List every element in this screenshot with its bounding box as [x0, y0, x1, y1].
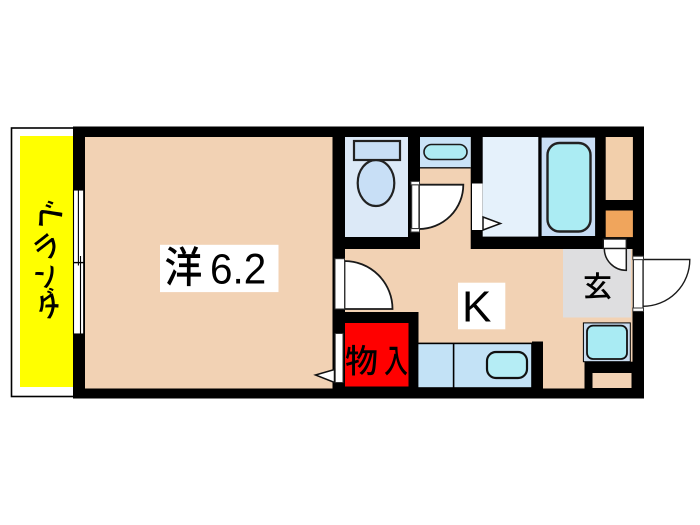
- svg-text:6.2: 6.2: [210, 244, 266, 292]
- svg-text:K: K: [462, 282, 491, 331]
